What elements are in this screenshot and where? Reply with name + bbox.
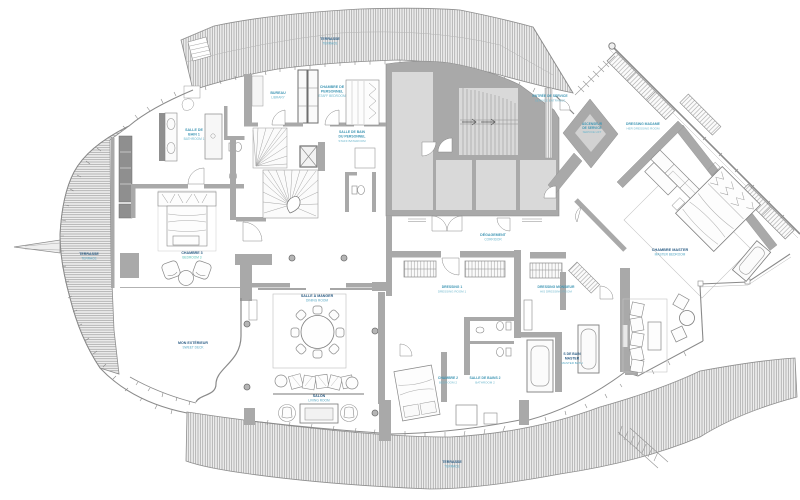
- svg-text:DU PERSONNEL: DU PERSONNEL: [339, 135, 366, 139]
- svg-text:BUREAU: BUREAU: [270, 91, 286, 95]
- svg-text:DRESSING ROOM 1: DRESSING ROOM 1: [438, 290, 467, 294]
- svg-text:SALLE DE BAINS 2: SALLE DE BAINS 2: [469, 376, 500, 380]
- svg-text:SALLE DE: SALLE DE: [185, 128, 203, 132]
- svg-text:TERRACE: TERRACE: [322, 42, 337, 46]
- svg-text:DRESSING MONSIEUR: DRESSING MONSIEUR: [538, 285, 575, 289]
- svg-text:STAFF BATHROOM: STAFF BATHROOM: [338, 139, 366, 143]
- svg-text:TERRASSE: TERRASSE: [320, 37, 340, 41]
- svg-text:BEDROOM 3: BEDROOM 3: [182, 256, 201, 260]
- svg-text:LIVING ROOM: LIVING ROOM: [308, 399, 330, 403]
- svg-text:DRESSING 1: DRESSING 1: [442, 285, 463, 289]
- svg-text:TERRACE: TERRACE: [81, 257, 96, 261]
- svg-text:SERVICE ENTRANCE: SERVICE ENTRANCE: [535, 99, 565, 103]
- svg-text:SWEET DECK: SWEET DECK: [182, 346, 204, 350]
- svg-text:MASTER BATH: MASTER BATH: [561, 361, 582, 365]
- svg-text:CHAMBRE 2: CHAMBRE 2: [438, 376, 458, 380]
- svg-text:HER DRESSING ROOM: HER DRESSING ROOM: [626, 127, 660, 131]
- svg-text:DINING ROOM: DINING ROOM: [306, 299, 328, 303]
- svg-text:TERRASSE: TERRASSE: [442, 460, 462, 464]
- svg-text:SALON: SALON: [313, 394, 326, 398]
- svg-text:LIBRARY: LIBRARY: [271, 96, 285, 100]
- svg-text:MASTER BEDROOM: MASTER BEDROOM: [655, 253, 686, 257]
- svg-text:SALLE DE BAIN: SALLE DE BAIN: [339, 130, 366, 134]
- svg-text:MASTER: MASTER: [565, 357, 580, 361]
- svg-text:TERRACE: TERRACE: [444, 465, 459, 469]
- svg-text:DÉGAGEMENT: DÉGAGEMENT: [480, 232, 507, 237]
- svg-text:BATHROOM 1: BATHROOM 1: [184, 137, 205, 141]
- svg-text:SALLE À MANGER: SALLE À MANGER: [301, 293, 334, 298]
- svg-text:STAFF BEDROOM: STAFF BEDROOM: [318, 94, 346, 98]
- svg-text:TERRASSE: TERRASSE: [79, 252, 99, 256]
- svg-text:S DE BAIN: S DE BAIN: [563, 352, 581, 356]
- svg-text:MON EXTÉRIEUR: MON EXTÉRIEUR: [178, 340, 208, 345]
- svg-text:BAIN 1: BAIN 1: [188, 133, 200, 137]
- svg-text:CHAMBRE DE: CHAMBRE DE: [320, 85, 345, 89]
- svg-text:DRESSING MADAME: DRESSING MADAME: [626, 122, 661, 126]
- svg-text:SERVICE LIFT: SERVICE LIFT: [583, 130, 602, 134]
- svg-text:CHAMBRE MASTER: CHAMBRE MASTER: [652, 248, 689, 252]
- svg-text:PERSONNEL: PERSONNEL: [321, 90, 344, 94]
- svg-text:BATHROOM 2: BATHROOM 2: [475, 381, 495, 385]
- svg-text:HIS DRESSING ROOM: HIS DRESSING ROOM: [540, 290, 572, 294]
- svg-text:BEDROOM 2: BEDROOM 2: [439, 381, 457, 385]
- svg-text:ENTRÉE DE SERVICE: ENTRÉE DE SERVICE: [532, 93, 568, 98]
- svg-text:CHAMBRE 3: CHAMBRE 3: [181, 251, 202, 255]
- svg-text:CORRIDOR: CORRIDOR: [484, 238, 502, 242]
